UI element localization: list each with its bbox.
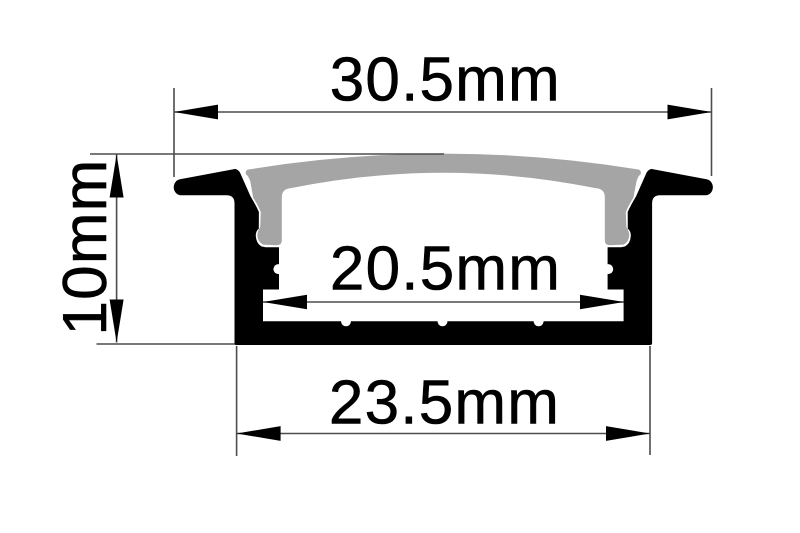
- svg-text:10mm: 10mm: [51, 158, 120, 335]
- svg-text:23.5mm: 23.5mm: [329, 368, 560, 437]
- svg-text:30.5mm: 30.5mm: [330, 46, 561, 115]
- svg-text:20.5mm: 20.5mm: [330, 235, 561, 304]
